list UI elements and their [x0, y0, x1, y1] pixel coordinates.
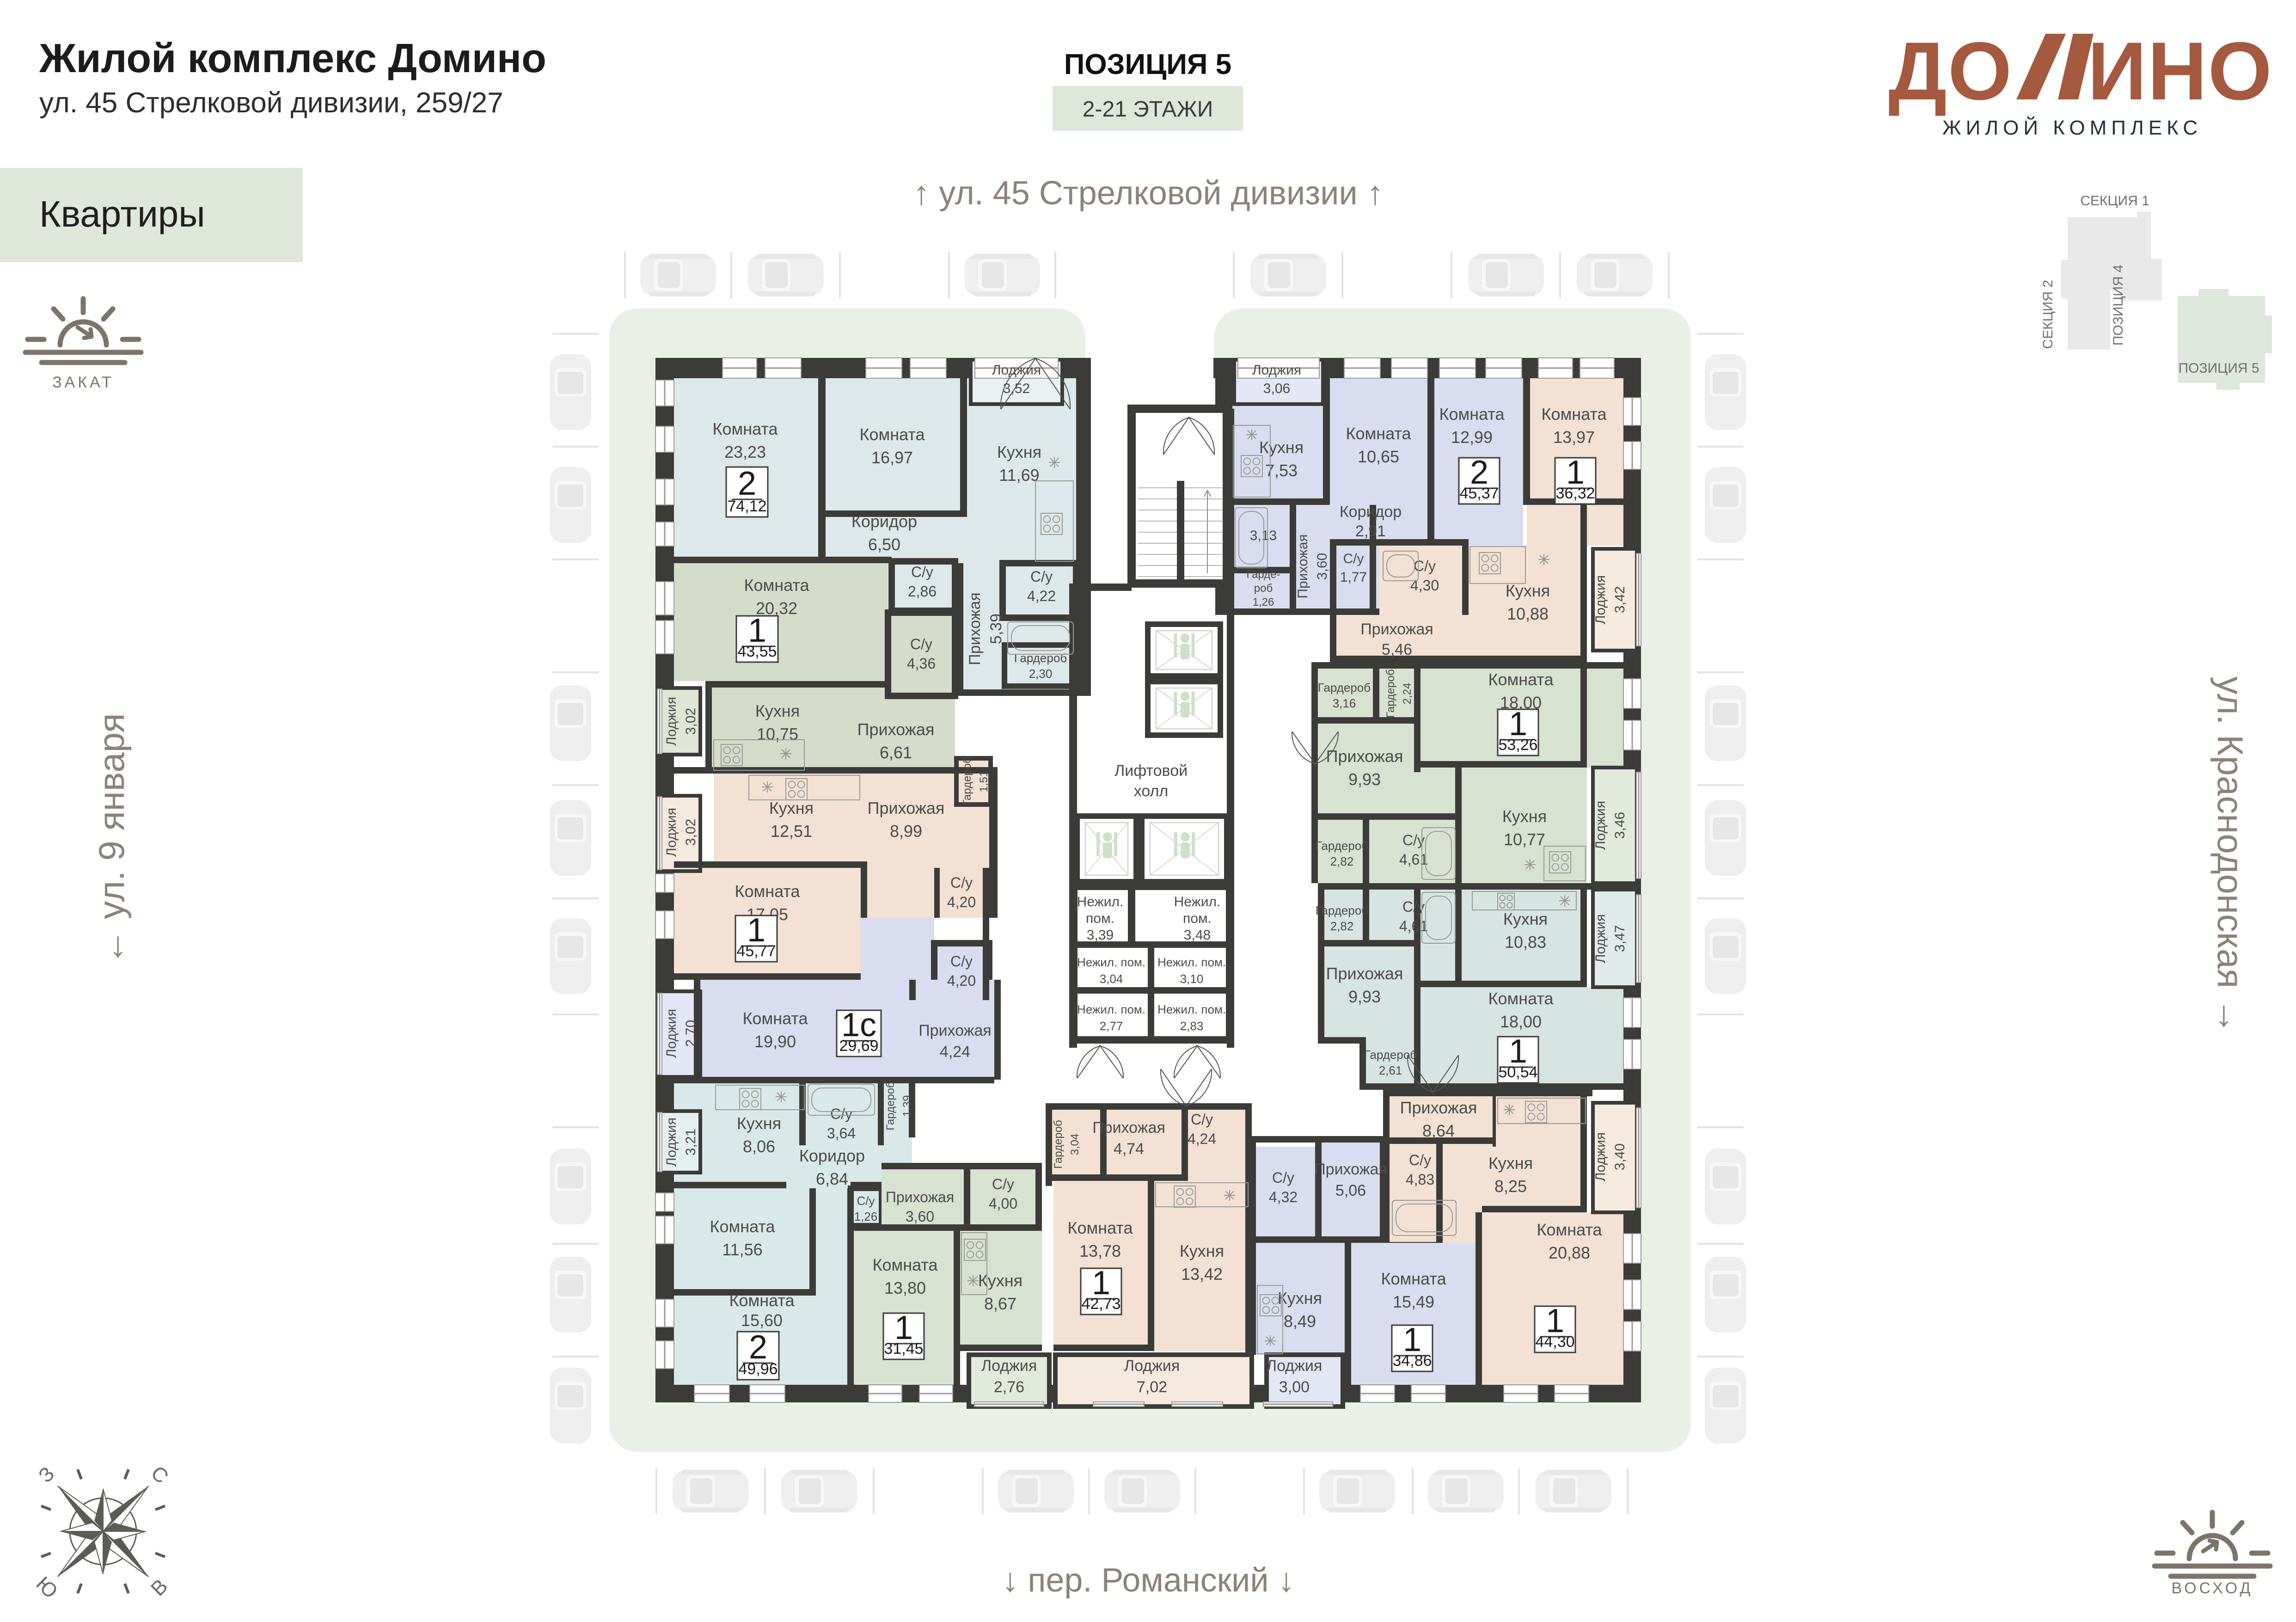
svg-text:С/у: С/у [1409, 1152, 1431, 1168]
svg-text:9,93: 9,93 [1348, 770, 1381, 789]
svg-text:Прихожая: Прихожая [868, 799, 945, 817]
svg-text:6,50: 6,50 [868, 535, 900, 554]
svg-text:13,80: 13,80 [884, 1278, 926, 1297]
svg-text:Лоджия: Лоджия [1124, 1357, 1180, 1375]
svg-text:8,25: 8,25 [1494, 1177, 1527, 1196]
svg-text:Кухня: Кухня [1502, 807, 1547, 826]
svg-text:Нежил. пом.: Нежил. пом. [1077, 1002, 1145, 1016]
svg-text:43,55: 43,55 [737, 643, 777, 660]
svg-text:3,60: 3,60 [1315, 553, 1330, 580]
svg-text:С/у: С/у [1343, 551, 1364, 566]
svg-text:Гардероб: Гардероб [961, 757, 974, 806]
svg-text:Комната: Комната [873, 1255, 938, 1274]
svg-text:49,96: 49,96 [738, 1360, 778, 1378]
svg-text:↑ ул. 45 Стрелковой дивизии: ↑ ул. 45 Стрелковой дивизии ↑ [913, 175, 1383, 212]
svg-text:Кухня: Кухня [1180, 1241, 1224, 1260]
svg-text:4,30: 4,30 [1410, 577, 1439, 594]
svg-text:74,12: 74,12 [727, 498, 766, 515]
svg-text:ЗАКАТ: ЗАКАТ [52, 374, 114, 391]
svg-text:Прихожая: Прихожая [1326, 964, 1403, 983]
svg-text:Комната: Комната [1381, 1269, 1447, 1288]
svg-text:Комната: Комната [1537, 1220, 1603, 1239]
svg-text:2,82: 2,82 [1330, 854, 1354, 868]
svg-text:Лоджия: Лоджия [1252, 362, 1301, 378]
svg-text:Прихожая: Прихожая [1326, 747, 1403, 766]
svg-text:Жилой комплекс Домино: Жилой комплекс Домино [39, 35, 546, 81]
svg-text:Коридор: Коридор [1340, 503, 1402, 521]
svg-text:↓ пер. Романский ↓: ↓ пер. Романский ↓ [1002, 1562, 1294, 1599]
svg-text:ИНО: ИНО [2088, 25, 2273, 117]
svg-text:С/у: С/у [1414, 558, 1436, 574]
svg-text:4,24: 4,24 [1188, 1130, 1216, 1147]
svg-text:Кухня: Кухня [1259, 438, 1304, 457]
svg-text:2,24: 2,24 [1401, 683, 1414, 705]
svg-text:3,02: 3,02 [683, 819, 698, 846]
svg-text:23,23: 23,23 [724, 442, 766, 461]
svg-text:18,00: 18,00 [1500, 1012, 1542, 1031]
svg-text:Лифтовой: Лифтовой [1114, 762, 1188, 780]
svg-text:Нежил. пом.: Нежил. пом. [1157, 1002, 1226, 1016]
svg-text:3,21: 3,21 [683, 1129, 698, 1155]
svg-text:15,60: 15,60 [741, 1311, 783, 1330]
svg-text:29,69: 29,69 [839, 1037, 878, 1055]
svg-text:Комната: Комната [729, 1291, 795, 1310]
svg-text:1,26: 1,26 [1253, 596, 1274, 608]
svg-text:Кухня: Кухня [1503, 909, 1548, 928]
svg-text:11,56: 11,56 [722, 1240, 762, 1259]
svg-text:3,64: 3,64 [827, 1125, 856, 1142]
svg-text:20,88: 20,88 [1549, 1243, 1590, 1262]
svg-text:8,99: 8,99 [890, 822, 922, 841]
svg-text:С/у: С/у [1272, 1169, 1294, 1186]
svg-text:2,76: 2,76 [994, 1378, 1024, 1396]
svg-text:С/у: С/у [911, 564, 933, 580]
svg-text:34,86: 34,86 [1392, 1352, 1432, 1370]
svg-text:45,37: 45,37 [1459, 485, 1499, 502]
svg-text:11,69: 11,69 [999, 466, 1039, 485]
svg-text:Комната: Комната [743, 1009, 808, 1028]
svg-text:пом.: пом. [1183, 911, 1212, 926]
svg-text:Лоджия: Лоджия [1593, 575, 1608, 624]
svg-text:3,52: 3,52 [1003, 381, 1030, 396]
svg-text:роб: роб [1254, 582, 1273, 595]
svg-text:С/у: С/у [830, 1106, 852, 1122]
svg-text:ЖИЛОЙ КОМПЛЕКС: ЖИЛОЙ КОМПЛЕКС [1942, 116, 2202, 139]
svg-text:8,64: 8,64 [1422, 1121, 1455, 1140]
svg-text:С/у: С/у [950, 874, 973, 891]
svg-text:2: 2 [738, 465, 756, 502]
svg-text:4,83: 4,83 [1406, 1171, 1434, 1188]
svg-text:Комната: Комната [744, 576, 810, 595]
svg-text:С/у: С/у [950, 953, 973, 970]
svg-text:44,30: 44,30 [1535, 1333, 1574, 1351]
svg-text:3,10: 3,10 [1180, 972, 1204, 986]
svg-text:45,77: 45,77 [736, 942, 776, 960]
svg-text:Комната: Комната [1068, 1218, 1133, 1237]
svg-text:3,04: 3,04 [1100, 972, 1123, 986]
svg-text:Прихожая: Прихожая [886, 1189, 954, 1205]
svg-text:4,00: 4,00 [989, 1195, 1017, 1212]
svg-text:3,39: 3,39 [1087, 928, 1114, 943]
svg-text:Нежил. пом.: Нежил. пом. [1077, 955, 1145, 969]
svg-text:8,67: 8,67 [984, 1294, 1016, 1313]
svg-text:Комната: Комната [735, 882, 801, 901]
svg-text:8,49: 8,49 [1284, 1312, 1316, 1331]
svg-text:2,61: 2,61 [1379, 1063, 1402, 1077]
svg-text:Прихожая: Прихожая [1400, 1098, 1477, 1117]
svg-text:16,97: 16,97 [871, 448, 913, 467]
svg-text:С/у: С/у [1402, 832, 1425, 848]
svg-text:Гардероб: Гардероб [1052, 1120, 1065, 1169]
svg-text:Гарде-: Гарде- [1246, 568, 1280, 581]
svg-text:Кухня: Кухня [769, 799, 814, 817]
svg-text:12,99: 12,99 [1451, 428, 1493, 447]
svg-text:Комната: Комната [710, 1217, 776, 1236]
svg-text:Кухня: Кухня [978, 1271, 1022, 1290]
svg-text:3,00: 3,00 [1279, 1378, 1310, 1396]
svg-text:Прихожая: Прихожая [1295, 534, 1310, 598]
svg-text:Гардероб: Гардероб [1316, 839, 1368, 853]
svg-text:Прихожая: Прихожая [1360, 621, 1433, 638]
svg-text:8,06: 8,06 [743, 1137, 775, 1156]
svg-text:2,91: 2,91 [1355, 522, 1386, 540]
svg-text:10,88: 10,88 [1507, 604, 1549, 623]
svg-text:4,36: 4,36 [907, 655, 936, 672]
svg-text:СЕКЦИЯ 1: СЕКЦИЯ 1 [2080, 193, 2149, 209]
svg-text:4,24: 4,24 [940, 1043, 970, 1061]
svg-text:7,02: 7,02 [1137, 1378, 1167, 1396]
svg-text:С/у: С/у [1030, 568, 1053, 585]
svg-text:Коридор: Коридор [799, 1146, 865, 1165]
svg-text:Прихожая: Прихожая [966, 592, 984, 665]
svg-text:ДО: ДО [1888, 25, 2013, 117]
svg-text:Лоджия: Лоджия [664, 1118, 679, 1167]
svg-text:Комната: Комната [1542, 405, 1607, 424]
svg-text:Прихожая: Прихожая [918, 1022, 992, 1039]
svg-text:4,20: 4,20 [947, 972, 976, 989]
svg-text:ул. Краснодонская →: ул. Краснодонская → [2210, 676, 2251, 1034]
svg-text:10,77: 10,77 [1504, 830, 1545, 849]
svg-text:Прихожая: Прихожая [857, 720, 935, 739]
svg-text:Комната: Комната [1488, 670, 1554, 689]
svg-text:С/у: С/у [992, 1176, 1014, 1192]
svg-text:4,32: 4,32 [1269, 1189, 1298, 1205]
svg-text:ПОЗИЦИЯ 5: ПОЗИЦИЯ 5 [1064, 49, 1231, 80]
svg-text:Гардероб: Гардероб [1318, 681, 1371, 694]
svg-text:3,46: 3,46 [1612, 812, 1628, 839]
svg-text:13,97: 13,97 [1553, 428, 1595, 447]
svg-text:Прихожая: Прихожая [1314, 1161, 1387, 1178]
svg-text:Лоджия: Лоджия [1593, 914, 1608, 963]
svg-text:4,20: 4,20 [947, 894, 976, 910]
svg-text:31,45: 31,45 [884, 1340, 923, 1358]
svg-text:Лоджия: Лоджия [1593, 1132, 1608, 1181]
svg-text:Квартиры: Квартиры [39, 193, 205, 234]
svg-text:С/у: С/у [1402, 898, 1425, 915]
svg-text:6,84: 6,84 [816, 1169, 848, 1188]
svg-text:3,60: 3,60 [906, 1208, 934, 1225]
svg-text:СЕКЦИЯ 2: СЕКЦИЯ 2 [2040, 280, 2056, 349]
svg-text:С/у: С/у [1191, 1111, 1213, 1128]
svg-text:Гардероб: Гардероб [1014, 651, 1067, 665]
svg-text:Коридор: Коридор [851, 512, 917, 531]
svg-text:3,42: 3,42 [1612, 586, 1628, 613]
svg-text:2,83: 2,83 [1180, 1019, 1204, 1033]
svg-text:Лоджия: Лоджия [981, 1357, 1037, 1375]
svg-text:3,06: 3,06 [1263, 381, 1290, 396]
svg-text:4,74: 4,74 [1114, 1140, 1144, 1158]
svg-text:Прихожая: Прихожая [1092, 1119, 1165, 1137]
svg-text:3,02: 3,02 [683, 708, 698, 735]
svg-text:Лоджия: Лоджия [664, 1009, 679, 1058]
svg-text:1,26: 1,26 [854, 1210, 878, 1223]
svg-text:2,77: 2,77 [1100, 1019, 1123, 1033]
svg-text:С/у: С/у [857, 1194, 875, 1208]
svg-text:50,54: 50,54 [1498, 1063, 1537, 1081]
svg-text:12,51: 12,51 [771, 822, 812, 841]
svg-text:Лоджия: Лоджия [992, 362, 1041, 378]
svg-text:4,22: 4,22 [1027, 588, 1056, 604]
svg-text:С/у: С/у [910, 636, 932, 652]
svg-text:13,78: 13,78 [1079, 1241, 1121, 1260]
svg-text:Комната: Комната [1346, 424, 1412, 443]
svg-text:Кухня: Кухня [997, 442, 1041, 461]
svg-text:2-21 ЭТАЖИ: 2-21 ЭТАЖИ [1083, 97, 1213, 122]
svg-text:19,90: 19,90 [754, 1032, 796, 1051]
svg-text:Кухня: Кухня [1506, 581, 1550, 600]
svg-text:2,30: 2,30 [1029, 667, 1053, 681]
svg-text:Нежил.: Нежил. [1077, 894, 1124, 909]
svg-text:Комната: Комната [860, 425, 925, 444]
svg-text:5,46: 5,46 [1382, 641, 1412, 658]
svg-text:4,61: 4,61 [1399, 918, 1428, 934]
svg-text:Комната: Комната [1488, 989, 1554, 1008]
svg-text:Кухня: Кухня [1278, 1289, 1322, 1308]
svg-text:Кухня: Кухня [755, 701, 800, 720]
svg-text:Нежил. пом.: Нежил. пом. [1157, 955, 1226, 969]
svg-text:Комната: Комната [713, 419, 778, 438]
svg-text:Нежил.: Нежил. [1174, 894, 1221, 909]
svg-text:← ул. 9 января: ← ул. 9 января [91, 713, 132, 965]
svg-text:3,16: 3,16 [1333, 696, 1356, 710]
svg-text:Лоджия: Лоджия [1267, 1357, 1322, 1375]
svg-text:Комната: Комната [1439, 405, 1505, 424]
svg-text:2,70: 2,70 [683, 1020, 698, 1047]
svg-text:6,61: 6,61 [880, 743, 912, 762]
svg-text:5,39: 5,39 [987, 614, 1005, 644]
svg-text:Лоджия: Лоджия [1593, 801, 1608, 850]
svg-text:Гардероб: Гардероб [884, 1081, 897, 1130]
svg-text:3,04: 3,04 [1069, 1134, 1081, 1155]
svg-text:ВОСХОД: ВОСХОД [2172, 1579, 2253, 1597]
svg-text:2,82: 2,82 [1330, 919, 1354, 933]
svg-text:9,93: 9,93 [1348, 987, 1381, 1006]
svg-text:10,83: 10,83 [1505, 933, 1546, 952]
svg-text:3,48: 3,48 [1184, 928, 1211, 943]
svg-text:Гардероб: Гардероб [1364, 1048, 1417, 1062]
svg-text:3,47: 3,47 [1612, 925, 1628, 952]
svg-text:ПОЗИЦИЯ 5: ПОЗИЦИЯ 5 [2178, 361, 2259, 376]
svg-text:1,77: 1,77 [1340, 570, 1367, 585]
svg-text:15,49: 15,49 [1393, 1292, 1434, 1311]
svg-text:2,86: 2,86 [908, 583, 937, 600]
svg-text:Гардероб: Гардероб [1384, 669, 1397, 718]
svg-text:4,61: 4,61 [1399, 851, 1428, 868]
svg-text:Кухня: Кухня [737, 1114, 781, 1133]
svg-text:ул. 45 Стрелковой дивизии, 259: ул. 45 Стрелковой дивизии, 259/27 [39, 87, 503, 119]
svg-text:13,42: 13,42 [1181, 1265, 1223, 1284]
svg-text:53,26: 53,26 [1498, 736, 1537, 754]
svg-text:42,73: 42,73 [1081, 1295, 1120, 1313]
svg-text:холл: холл [1134, 782, 1168, 800]
svg-text:ПОЗИЦИЯ 4: ПОЗИЦИЯ 4 [2111, 264, 2126, 345]
svg-text:10,65: 10,65 [1358, 447, 1399, 466]
svg-text:3,40: 3,40 [1612, 1143, 1628, 1170]
svg-text:1,39: 1,39 [901, 1095, 913, 1117]
svg-text:Кухня: Кухня [1488, 1154, 1533, 1173]
svg-text:36,32: 36,32 [1555, 485, 1595, 502]
svg-text:Гардероб: Гардероб [1316, 903, 1368, 917]
svg-text:1,51: 1,51 [978, 771, 990, 793]
svg-text:5,06: 5,06 [1335, 1182, 1366, 1199]
svg-text:пом.: пом. [1086, 911, 1114, 926]
svg-text:Лоджия: Лоджия [664, 697, 679, 746]
svg-text:10,75: 10,75 [757, 725, 798, 743]
svg-text:Лоджия: Лоджия [664, 808, 679, 857]
